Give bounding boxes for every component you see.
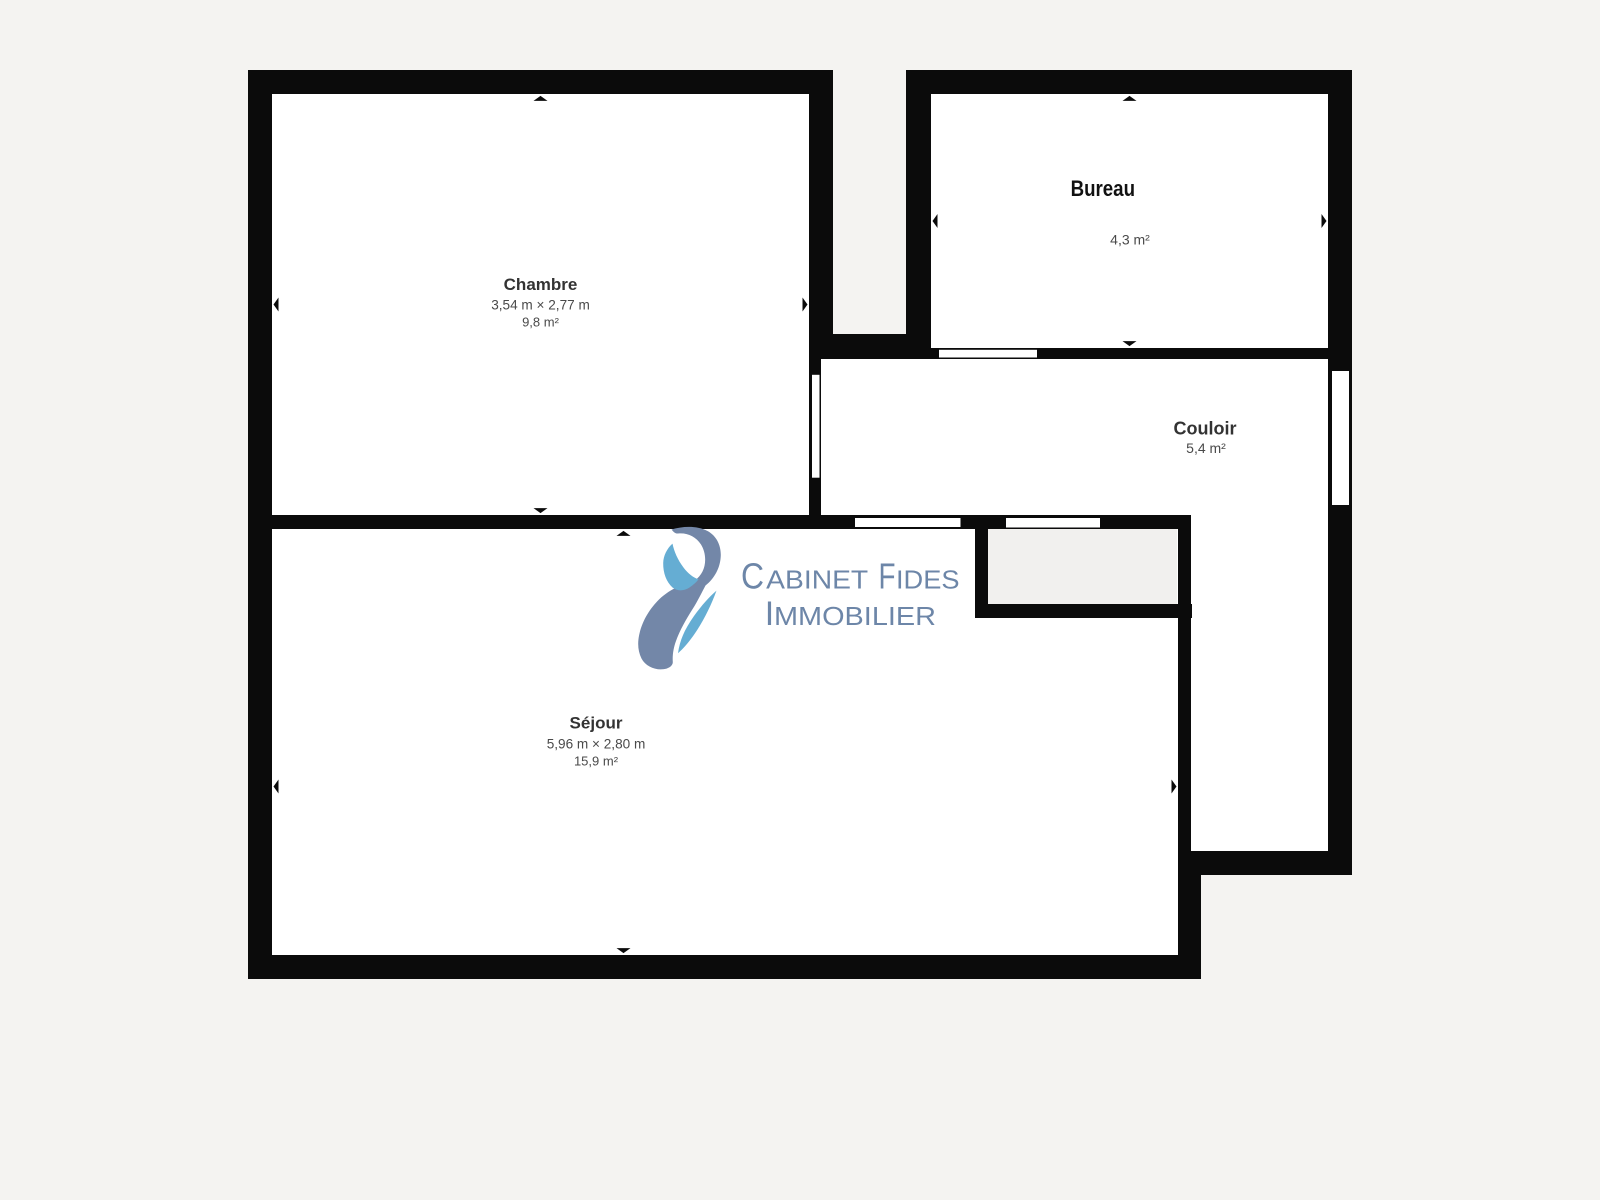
svg-text:Couloir: Couloir	[1174, 418, 1237, 438]
svg-text:F: F	[879, 556, 896, 597]
svg-text:4,3 m²: 4,3 m²	[1110, 232, 1150, 248]
svg-text:I: I	[765, 595, 774, 633]
svg-text:IDES: IDES	[896, 565, 960, 595]
svg-text:C: C	[741, 556, 764, 597]
svg-text:Bureau: Bureau	[1071, 178, 1135, 202]
svg-text:15,9 m²: 15,9 m²	[574, 754, 619, 769]
svg-text:5,4 m²: 5,4 m²	[1186, 440, 1226, 456]
svg-text:3,54 m × 2,77 m: 3,54 m × 2,77 m	[491, 298, 590, 313]
svg-text:Chambre: Chambre	[504, 275, 578, 294]
svg-text:Séjour: Séjour	[570, 714, 623, 733]
svg-text:ABINET: ABINET	[766, 565, 868, 595]
svg-text:MMOBILIER: MMOBILIER	[774, 601, 936, 631]
svg-text:5,96 m × 2,80 m: 5,96 m × 2,80 m	[547, 737, 646, 752]
svg-text:9,8 m²: 9,8 m²	[522, 315, 560, 330]
